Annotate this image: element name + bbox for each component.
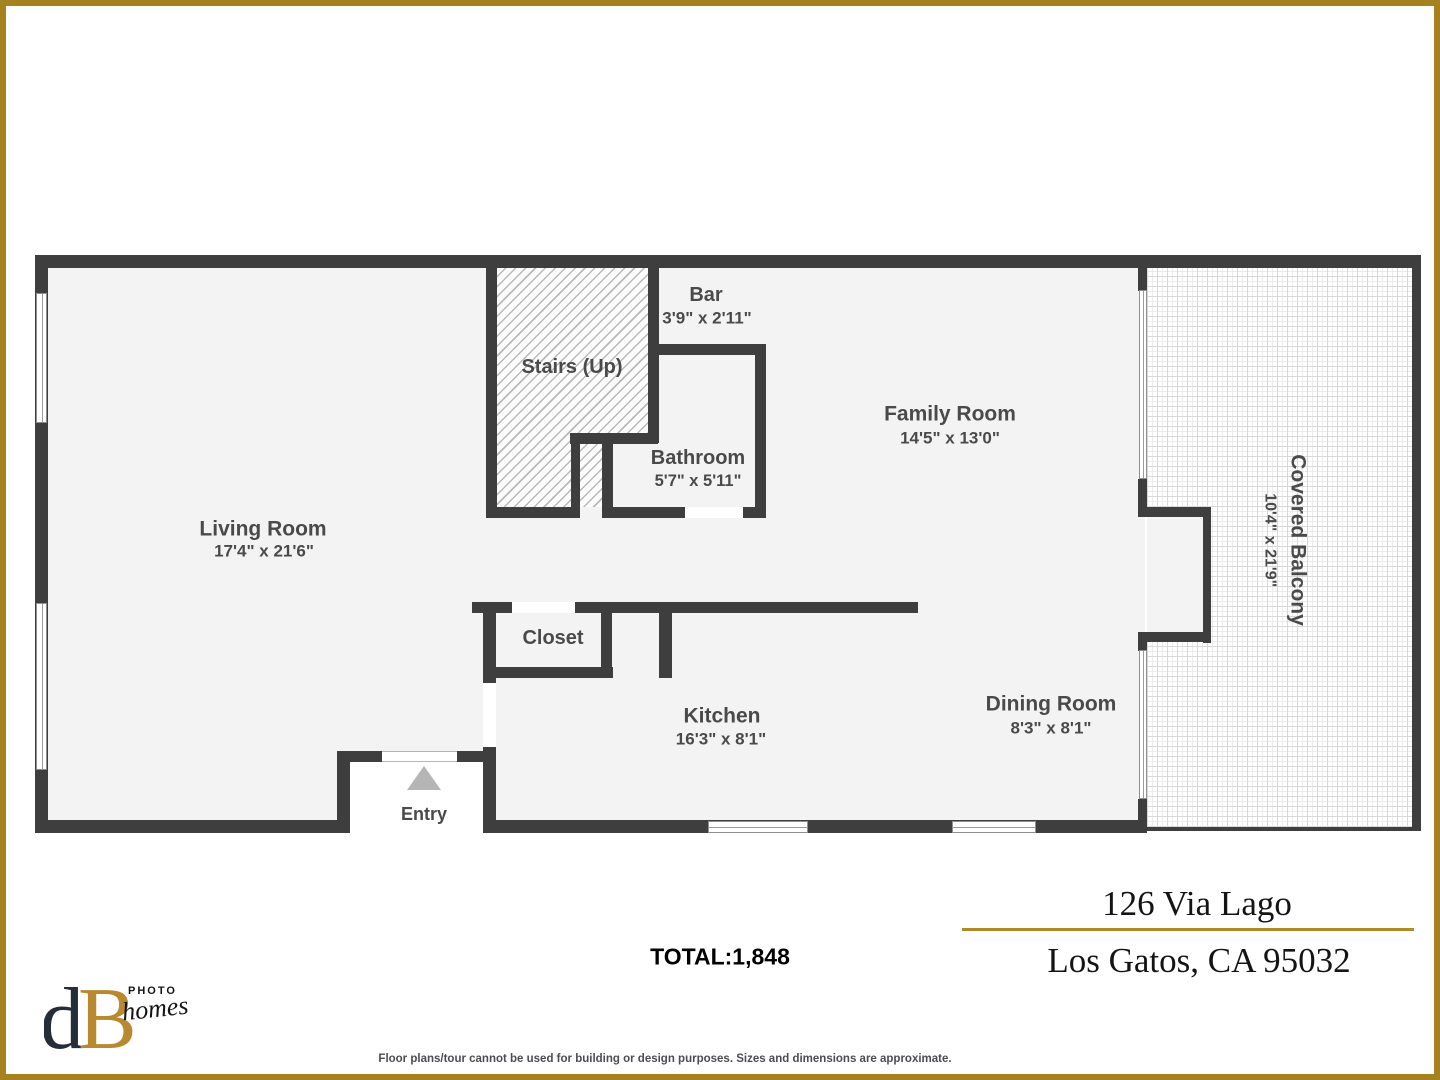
room-label-bathroom: Bathroom [651, 448, 745, 468]
entry-arrow-icon [407, 766, 441, 790]
door-opening [685, 507, 743, 518]
wall [1147, 827, 1421, 831]
room-label-bar: Bar [689, 285, 722, 305]
wall [601, 613, 612, 673]
window [708, 821, 808, 833]
window [952, 821, 1036, 833]
room-dims-kitchen: 16'3" x 8'1" [676, 731, 766, 748]
wall [35, 820, 346, 833]
room-label-entry: Entry [401, 805, 447, 823]
door-opening [512, 602, 575, 613]
wall [35, 255, 1421, 268]
wall [755, 344, 766, 518]
total-area-label: TOTAL:1,848 [650, 944, 790, 971]
logo-word-homes: homes [121, 991, 190, 1028]
balcony-dims: 10'4" x 21'9" [1261, 454, 1279, 626]
room-label-balcony: Covered Balcony 10'4" x 21'9" [1261, 454, 1310, 626]
window [36, 603, 47, 770]
wall [656, 344, 766, 355]
sliding-door-window [1139, 290, 1147, 479]
wall [1138, 507, 1211, 517]
wall [486, 507, 576, 518]
address-divider-rule [962, 928, 1414, 931]
room-dims-dining: 8'3" x 8'1" [1011, 720, 1092, 737]
wall [1412, 255, 1421, 831]
wall [659, 602, 672, 678]
wall [483, 667, 613, 678]
room-label-stairs: Stairs (Up) [521, 357, 622, 377]
wall [483, 820, 1147, 833]
wall [486, 261, 497, 517]
room-dims-bathroom: 5'7" x 5'11" [655, 473, 742, 490]
room-dims-living: 17'4" x 21'6" [214, 543, 314, 560]
room-dims-family: 14'5" x 13'0" [900, 430, 1000, 447]
balcony-name: Covered Balcony [1286, 454, 1310, 626]
wall [1138, 261, 1147, 291]
window [36, 293, 47, 423]
address-line2: Los Gatos, CA 95032 [1047, 941, 1350, 981]
wall [1203, 507, 1211, 643]
wall [571, 443, 580, 518]
address-line1: 126 Via Lago [1102, 884, 1292, 924]
room-dims-bar: 3'9" x 2'11" [662, 310, 751, 327]
balcony-notch-floor [1147, 517, 1203, 632]
room-label-dining: Dining Room [986, 694, 1117, 715]
wall [1138, 799, 1147, 824]
door-opening [483, 683, 496, 747]
disclaimer-text: Floor plans/tour cannot be used for buil… [378, 1053, 951, 1065]
wall [337, 751, 350, 833]
room-label-living: Living Room [199, 519, 326, 540]
room-label-family: Family Room [884, 404, 1016, 425]
floor-plan-page: Living Room 17'4" x 21'6" Stairs (Up) Ba… [0, 0, 1440, 1080]
wall [1138, 632, 1211, 642]
wall [1138, 632, 1147, 651]
wall [570, 433, 658, 444]
room-label-kitchen: Kitchen [683, 706, 760, 727]
room-label-closet: Closet [522, 628, 583, 648]
entry-door-opening [382, 751, 457, 762]
sliding-door-window [1139, 650, 1147, 799]
